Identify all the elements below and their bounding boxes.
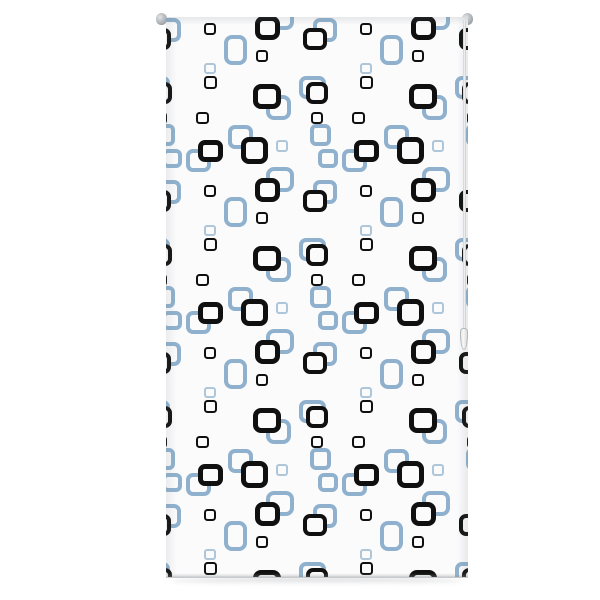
pattern-square [462,406,468,428]
pattern-square [204,400,217,413]
pattern-square [459,514,468,536]
pattern-square [256,50,268,62]
roller-blind [166,17,468,578]
pattern-square [303,28,327,50]
pattern-square [166,124,175,146]
pattern-square [256,374,268,386]
pattern-square [412,212,424,224]
pattern-square [311,112,323,124]
pattern-square [166,311,182,330]
pattern-square [310,448,331,470]
pattern-square [241,299,268,326]
pattern-square [276,464,288,476]
pattern-square [360,185,372,197]
pattern-square [467,112,468,124]
pattern-square [432,302,444,314]
pattern-square [204,225,216,236]
pattern-square [224,35,247,65]
pattern-square [255,502,280,526]
pattern-square [166,406,172,428]
pattern-square [354,464,379,486]
pattern-square [466,124,468,146]
pattern-square [397,299,424,326]
pattern-square [409,246,437,271]
pattern-square [276,302,288,314]
pattern-square [360,400,373,413]
pattern-square [166,473,182,492]
pattern-square [354,140,379,162]
pattern-square [360,562,373,575]
pattern-square [166,286,175,308]
pattern-square [255,17,280,40]
pattern-square [397,461,424,488]
pattern-square [204,23,216,35]
pattern-square [360,549,372,560]
pattern-square [432,464,444,476]
pattern-square [318,473,338,492]
pattern-square [196,112,209,124]
pattern-square [204,76,217,89]
pattern-square [466,448,468,470]
pattern-square [253,246,281,271]
pattern-square [204,63,216,74]
pattern-square [204,347,216,359]
pattern-square [466,286,468,308]
pattern-square [204,509,216,521]
pattern-square [360,76,373,89]
pattern-square [409,570,437,578]
pattern-square [306,82,328,104]
pattern-square [256,536,268,548]
pattern-square [360,63,372,74]
pattern-square [412,374,424,386]
pattern-square [204,549,216,560]
pattern-square [166,190,171,212]
pattern-square [432,140,444,152]
pattern-square [412,50,424,62]
pattern-square [459,352,468,374]
pattern-square [224,359,247,389]
pattern-square [411,178,436,202]
pattern-square [380,197,403,227]
pattern-square [306,568,328,578]
pattern-square [255,178,280,202]
pattern-square [166,112,167,124]
pattern-square [255,340,280,364]
pattern-square [303,352,327,374]
pattern-square [311,436,323,448]
pattern-square [411,502,436,526]
pattern-square [360,23,372,35]
pattern-square [318,311,338,330]
pattern-square [224,197,247,227]
pattern-square [204,387,216,398]
pattern-square [166,82,172,104]
pattern-square [467,436,468,448]
pattern-square [360,387,372,398]
pattern-square [204,185,216,197]
pattern-square [166,244,172,266]
pattern-square [311,274,323,286]
pattern-square [224,521,247,551]
pattern-square [310,286,331,308]
pattern-square [166,514,171,536]
pattern-square [380,359,403,389]
pattern-square [253,84,281,109]
pattern-square [306,244,328,266]
pattern-square [303,514,327,536]
pull-cord [463,20,466,330]
pattern-square [276,140,288,152]
pattern-square [166,448,175,470]
squares-pattern [166,17,468,578]
pattern-square [198,302,223,324]
pattern-square [166,274,167,286]
pattern-square [467,274,468,286]
pattern-square [204,238,217,251]
pattern-square [360,238,373,251]
pattern-square [411,17,436,40]
pattern-square [318,149,338,168]
pattern-square [360,225,372,236]
pattern-square [196,436,209,448]
pattern-square [198,464,223,486]
pattern-square [198,140,223,162]
pattern-square [166,568,172,578]
pattern-square [397,137,424,164]
pattern-square [166,436,167,448]
pattern-square [360,509,372,521]
pattern-square [253,408,281,433]
pattern-square [253,570,281,578]
pattern-square [352,112,365,124]
pattern-square [352,436,365,448]
pattern-square [411,340,436,364]
pattern-square [166,149,182,168]
pattern-square [409,408,437,433]
pattern-square [352,274,365,286]
pattern-square [310,124,331,146]
pattern-square [204,562,217,575]
pattern-square [380,35,403,65]
pattern-square [462,568,468,578]
pattern-square [409,84,437,109]
pattern-square [354,302,379,324]
pattern-square [241,137,268,164]
pattern-square [166,352,171,374]
pattern-square [380,521,403,551]
pattern-square [306,406,328,428]
pattern-square [303,190,327,212]
pattern-square [412,536,424,548]
pattern-square [256,212,268,224]
pattern-square [166,28,171,50]
pattern-square [241,461,268,488]
pattern-square [196,274,209,286]
pattern-square [360,347,372,359]
blind-drop-shadow [171,578,463,584]
product-photo [0,0,600,600]
